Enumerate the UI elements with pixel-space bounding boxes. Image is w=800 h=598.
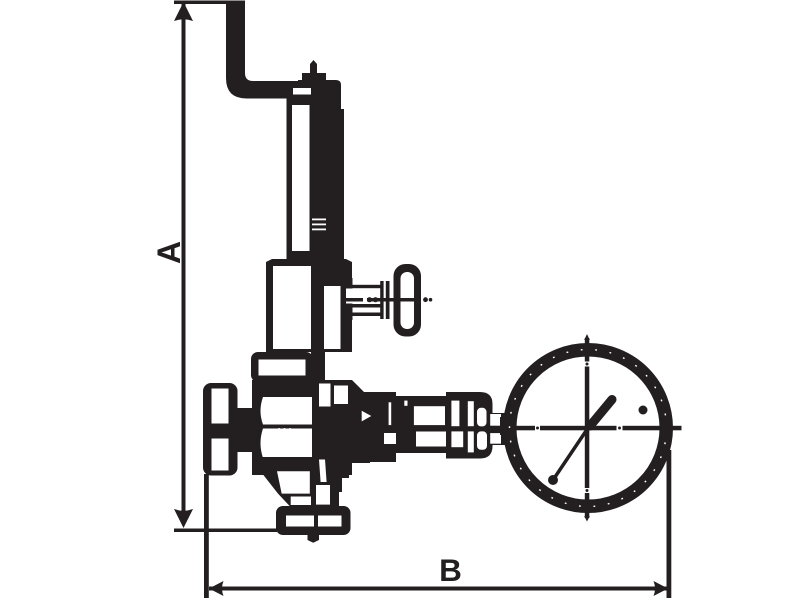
svg-text:A: A: [151, 241, 187, 264]
svg-text:B: B: [439, 552, 462, 588]
